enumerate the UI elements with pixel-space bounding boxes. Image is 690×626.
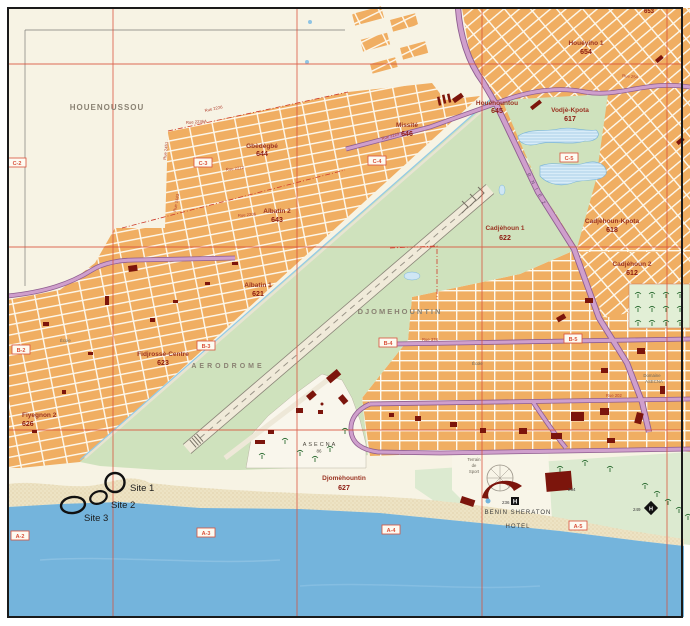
area-label-asecna: ASECNA	[303, 442, 338, 448]
grid-cell-B4: B-4	[379, 338, 397, 347]
district-num-622: 622	[499, 235, 511, 242]
grid-cell-A5: A-5	[569, 521, 587, 530]
building-number-249: 249	[633, 507, 641, 512]
asecna-number: 86	[316, 449, 322, 454]
district-num-644: 644	[256, 151, 268, 158]
ecole-label-west: École	[60, 338, 71, 343]
sheraton-label-line1: BENIN SHERATON	[485, 510, 552, 516]
grid-cell-A2: A-2	[11, 531, 29, 540]
grid-cell-B5: B-5	[564, 334, 582, 343]
street-label: Rue 202	[606, 393, 623, 398]
grid-cell-B3: B-3	[197, 341, 215, 350]
svg-text:B-4: B-4	[384, 341, 394, 347]
district-num-612: 612	[626, 270, 638, 277]
terrain-sport-line3: Sport	[469, 469, 480, 474]
svg-text:C-4: C-4	[373, 159, 383, 165]
district-num-621: 621	[252, 291, 264, 298]
grid-cell-C2: C-2	[8, 158, 26, 167]
terrain-sport-line1: Terrain	[467, 457, 481, 462]
grid-cell-A3: A-3	[197, 528, 215, 537]
svg-text:C-5: C-5	[565, 156, 574, 162]
svg-text:A-4: A-4	[387, 528, 397, 534]
district-name-646: Missité	[396, 122, 418, 129]
district-number-653: 653	[644, 9, 655, 15]
grid-cell-C5: C-5	[560, 153, 578, 162]
svg-text:C-2: C-2	[13, 161, 22, 167]
map-page: H H Rue 2226 Rue 2236A Rue 2451 Rue 2212…	[0, 0, 690, 626]
grid-cell-C3: C-3	[194, 158, 212, 167]
building-number-236: 236	[502, 500, 510, 505]
grid-cell-B2: B-2	[12, 345, 30, 354]
svg-text:A-3: A-3	[202, 531, 211, 537]
grid-cell-A4: A-4	[382, 525, 400, 534]
district-name-644: Gbèdègbé	[246, 143, 278, 150]
hotel-h-letter: H	[513, 500, 517, 506]
district-name-645: Houéhountou	[476, 100, 518, 107]
area-label-houenoussou: HOUENOUSSOU	[70, 103, 145, 112]
svg-text:C-3: C-3	[199, 161, 208, 167]
map-canvas: H H Rue 2226 Rue 2236A Rue 2451 Rue 2212…	[0, 0, 690, 626]
district-num-623: 623	[157, 360, 169, 367]
domaine-asecna-line1: Domaine	[643, 373, 661, 378]
district-name-612: Cadjèhoun 2	[612, 261, 651, 268]
district-name-621: Aïbatin 1	[244, 282, 272, 289]
district-num-627: 627	[338, 485, 350, 492]
district-name-627: Djomèhountin	[322, 475, 366, 482]
district-num-643: 643	[271, 217, 283, 224]
terrain-sport-line2: de	[472, 463, 477, 468]
domaine-asecna-line2: ASECNA	[645, 379, 663, 384]
area-label-djomehountin: DJOMEHOUNTIN	[358, 307, 443, 316]
district-num-617: 617	[564, 116, 576, 123]
district-name-626: Fiyegnon 2	[22, 412, 57, 419]
svg-text:B-2: B-2	[17, 348, 26, 354]
district-name-622: Cadjèhoun 1	[485, 225, 524, 232]
district-name-643: Aïbatin 2	[263, 208, 291, 215]
site-1-label: Site 1	[130, 483, 154, 494]
site-2-label: Site 2	[111, 500, 135, 511]
district-name-623: Fidjrossè-Centre	[137, 351, 189, 358]
svg-text:A-2: A-2	[16, 534, 25, 540]
svg-text:B-5: B-5	[569, 337, 578, 343]
svg-text:B-3: B-3	[202, 344, 211, 350]
district-num-618: 618	[606, 227, 618, 234]
ecole-label-east: École	[472, 361, 483, 366]
grid-cell-C4: C-4	[368, 156, 386, 165]
street-label: Rue 378	[422, 337, 439, 342]
district-name-617: Vodjè-Kpota	[551, 107, 589, 114]
district-num-646: 646	[401, 131, 413, 138]
site-3-label: Site 3	[84, 513, 108, 524]
hotel-pool	[486, 499, 491, 504]
svg-text:A-5: A-5	[574, 524, 583, 530]
sheraton-label-line2: HOTEL	[505, 524, 530, 530]
district-num-645: 645	[491, 108, 503, 115]
building-number-264: 264	[568, 487, 576, 492]
district-num-654: 654	[580, 49, 592, 56]
area-label-aerodrome: AERODROME	[191, 363, 264, 370]
district-name-618: Cadjèhoun-Kpota	[585, 218, 640, 225]
district-name-654: Houéyiho 1	[568, 40, 603, 47]
hotel-249-h-letter: H	[649, 507, 653, 513]
district-num-626: 626	[22, 421, 34, 428]
